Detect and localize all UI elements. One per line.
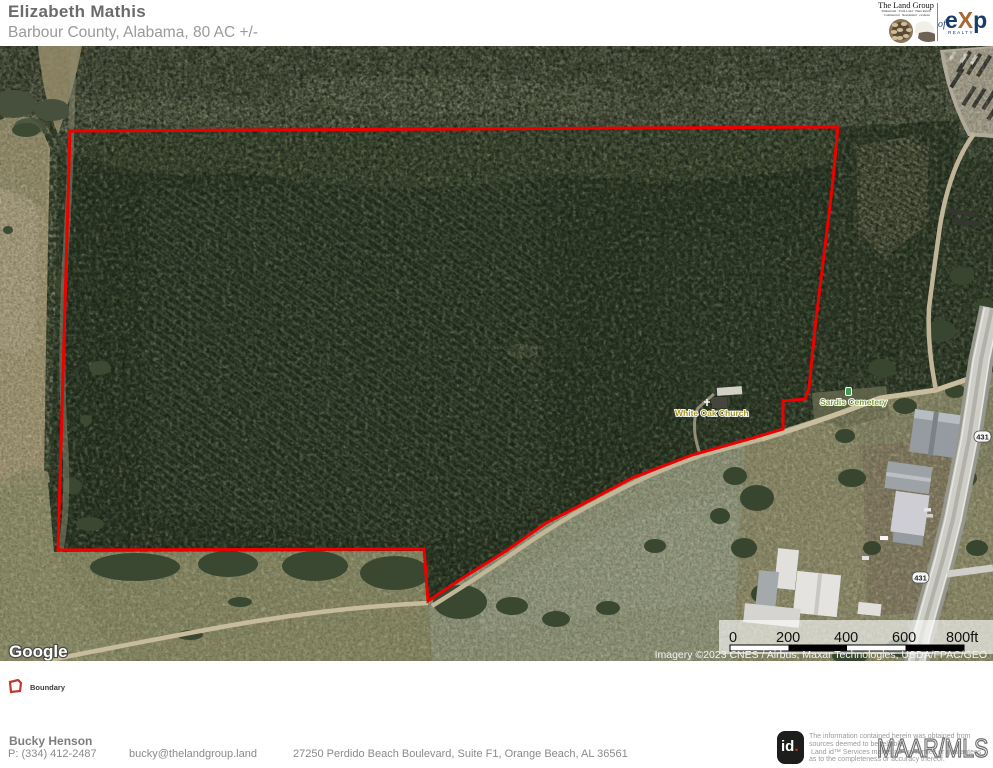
svg-text:Sardis Cemetery: Sardis Cemetery (820, 397, 887, 407)
svg-text:800ft: 800ft (946, 630, 978, 646)
svg-text:0: 0 (729, 630, 737, 646)
svg-text:Google: Google (9, 642, 68, 661)
svg-text:White Oak Church: White Oak Church (675, 408, 749, 418)
svg-text:400: 400 (834, 630, 858, 646)
svg-text:Imagery ©2023 CNES / Airbus, M: Imagery ©2023 CNES / Airbus, Maxar Techn… (655, 649, 987, 661)
svg-text:600: 600 (892, 630, 916, 646)
svg-text:200: 200 (776, 630, 800, 646)
